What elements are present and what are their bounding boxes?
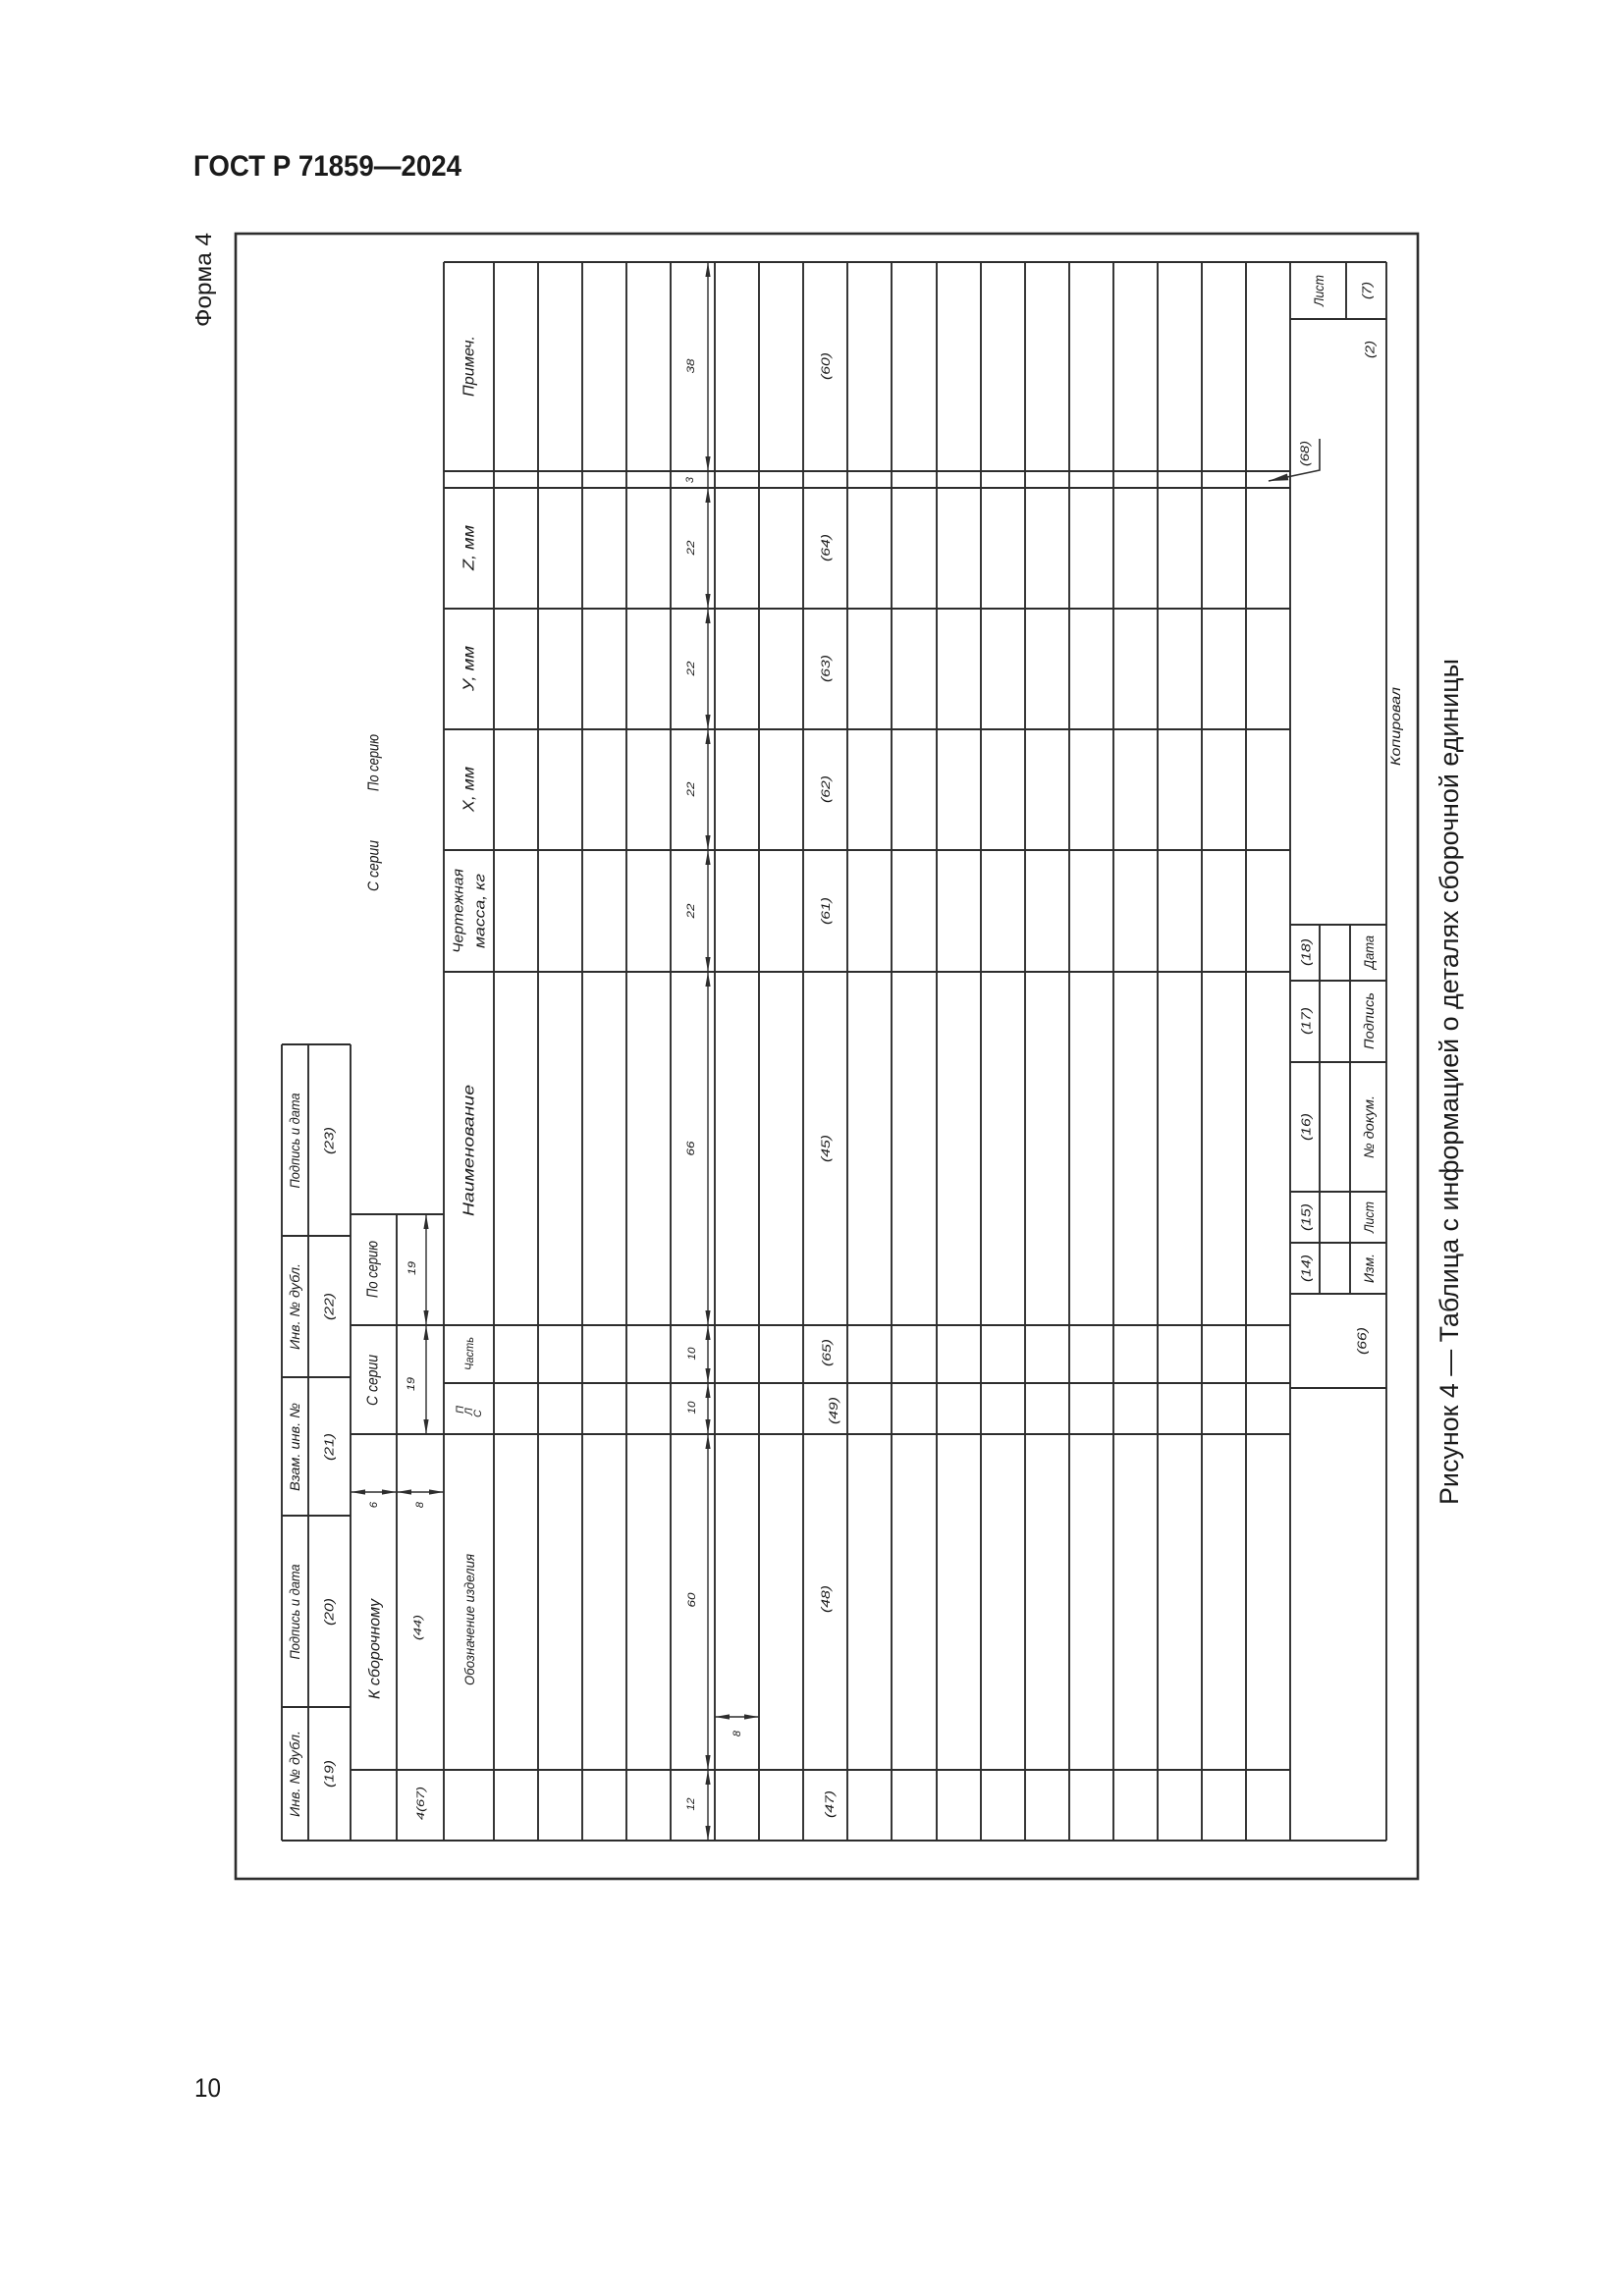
svg-text:С: С	[472, 1410, 484, 1417]
svg-text:60: 60	[686, 1591, 698, 1607]
svg-text:(47): (47)	[823, 1790, 837, 1818]
svg-text:(48): (48)	[819, 1585, 833, 1613]
svg-text:(66): (66)	[1355, 1327, 1370, 1355]
svg-text:10: 10	[194, 2073, 221, 2103]
svg-text:(20): (20)	[322, 1598, 337, 1626]
svg-text:38: 38	[685, 357, 697, 373]
svg-text:(7): (7)	[1360, 282, 1375, 299]
svg-text:Лист: Лист	[1361, 1201, 1377, 1234]
svg-text:Взам. инв. №: Взам. инв. №	[287, 1403, 302, 1491]
svg-text:Изм.: Изм.	[1361, 1254, 1377, 1283]
svg-text:(14): (14)	[1299, 1255, 1314, 1282]
svg-text:(62): (62)	[819, 775, 833, 803]
svg-text:Обозначение изделия: Обозначение изделия	[461, 1554, 477, 1685]
svg-text:3: 3	[684, 476, 696, 483]
svg-text:Форма 4: Форма 4	[190, 233, 216, 327]
svg-text:10: 10	[686, 1401, 698, 1415]
svg-text:Чертежная: Чертежная	[451, 869, 467, 953]
svg-text:Подпись: Подпись	[1361, 992, 1377, 1049]
svg-text:66: 66	[685, 1140, 697, 1155]
svg-text:8: 8	[731, 1730, 743, 1736]
svg-text:22: 22	[685, 541, 697, 557]
svg-text:Наименование: Наименование	[461, 1085, 478, 1216]
svg-text:Часть: Часть	[462, 1337, 476, 1370]
svg-text:Z, мм: Z, мм	[461, 525, 478, 571]
svg-text:(60): (60)	[819, 352, 833, 380]
svg-text:(44): (44)	[412, 1615, 424, 1640]
svg-text:№ докум.: № докум.	[1361, 1095, 1377, 1158]
svg-text:(61): (61)	[819, 897, 833, 925]
svg-text:(65): (65)	[820, 1339, 834, 1366]
svg-text:Примеч.: Примеч.	[461, 336, 478, 397]
svg-text:Рисунок 4 — Таблица с информац: Рисунок 4 — Таблица с информацией о дета…	[1435, 659, 1464, 1505]
svg-text:22: 22	[685, 904, 697, 920]
svg-text:Инв. № дубл.: Инв. № дубл.	[287, 1263, 302, 1350]
svg-text:(64): (64)	[819, 534, 833, 561]
svg-text:ГОСТ Р 71859—2024: ГОСТ Р 71859—2024	[193, 150, 461, 183]
svg-text:(63): (63)	[819, 655, 833, 682]
svg-text:19: 19	[406, 1261, 418, 1275]
svg-text:У, мм: У, мм	[461, 646, 478, 692]
svg-text:6: 6	[368, 1501, 380, 1508]
svg-text:(17): (17)	[1299, 1007, 1314, 1035]
svg-text:С серии: С серии	[365, 1355, 382, 1406]
svg-text:(18): (18)	[1299, 938, 1314, 966]
svg-text:22: 22	[685, 782, 697, 798]
svg-text:Подпись и дата: Подпись и дата	[287, 1093, 302, 1188]
svg-text:Х, мм: Х, мм	[461, 767, 478, 813]
svg-text:(45): (45)	[819, 1135, 833, 1162]
svg-text:Дата: Дата	[1361, 935, 1377, 971]
svg-text:Подпись и дата: Подпись и дата	[287, 1564, 302, 1659]
svg-text:По серию: По серию	[365, 1241, 382, 1298]
svg-text:(23): (23)	[322, 1127, 337, 1154]
svg-text:С серии: С серии	[366, 840, 383, 891]
svg-text:12: 12	[685, 1798, 697, 1811]
svg-text:Инв. № дубл.: Инв. № дубл.	[287, 1731, 302, 1817]
svg-text:10: 10	[686, 1347, 698, 1361]
svg-text:Лист: Лист	[1311, 275, 1326, 307]
svg-text:(22): (22)	[322, 1293, 337, 1320]
svg-text:К сборочному: К сборочному	[367, 1598, 384, 1699]
svg-text:Копировал: Копировал	[1387, 687, 1403, 766]
svg-text:(49): (49)	[827, 1397, 840, 1424]
svg-text:(16): (16)	[1299, 1113, 1314, 1141]
svg-text:22: 22	[685, 662, 697, 677]
svg-text:(21): (21)	[322, 1433, 337, 1461]
svg-text:(68): (68)	[1298, 441, 1312, 466]
svg-text:По серию: По серию	[366, 734, 383, 791]
svg-text:масса, кг: масса, кг	[472, 873, 489, 948]
svg-text:(15): (15)	[1299, 1203, 1314, 1231]
svg-text:(19): (19)	[322, 1760, 337, 1788]
svg-text:(2): (2)	[1363, 341, 1378, 358]
svg-text:8: 8	[414, 1501, 426, 1508]
svg-text:4(67): 4(67)	[415, 1787, 427, 1820]
svg-text:19: 19	[406, 1377, 417, 1391]
